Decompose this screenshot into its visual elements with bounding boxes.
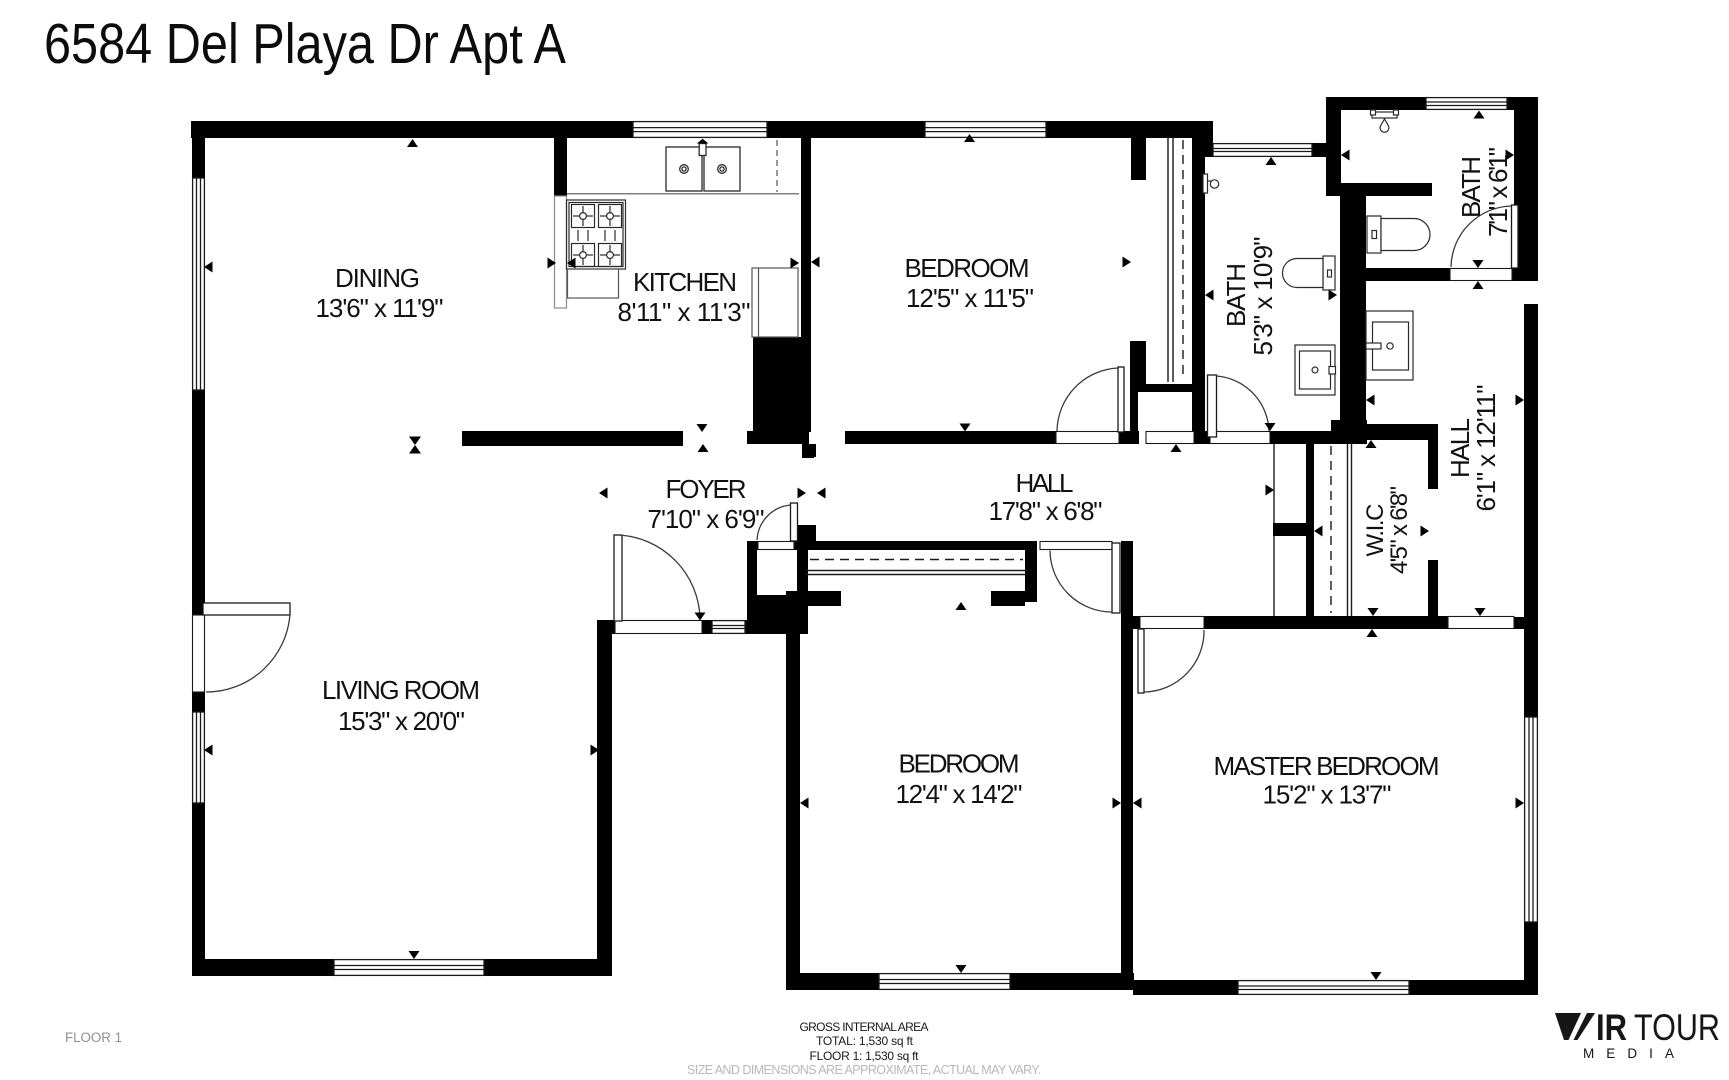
svg-text:TOUR: TOUR xyxy=(1634,1007,1720,1048)
svg-text:6584 Del Playa Dr Apt A: 6584 Del Playa Dr Apt A xyxy=(44,12,566,76)
svg-text:KITCHEN: KITCHEN xyxy=(633,267,737,297)
svg-text:7'1" x 6'1": 7'1" x 6'1" xyxy=(1483,147,1513,237)
svg-text:MEDIA: MEDIA xyxy=(1583,1046,1681,1061)
svg-text:17'8" x 6'8": 17'8" x 6'8" xyxy=(989,496,1103,526)
svg-text:HALL: HALL xyxy=(1016,468,1074,498)
svg-text:15'2" x 13'7": 15'2" x 13'7" xyxy=(1263,780,1392,810)
svg-text:LIVING ROOM: LIVING ROOM xyxy=(322,675,480,705)
svg-text:15'3" x 20'0": 15'3" x 20'0" xyxy=(338,706,465,736)
svg-text:7'10" x 6'9": 7'10" x 6'9" xyxy=(648,504,765,534)
svg-text:DINING: DINING xyxy=(335,263,420,293)
svg-text:12'4" x 14'2": 12'4" x 14'2" xyxy=(896,779,1023,809)
svg-text:FLOOR 1: 1,530 sq ft: FLOOR 1: 1,530 sq ft xyxy=(810,1049,920,1063)
svg-text:W.I.C: W.I.C xyxy=(1362,504,1389,557)
svg-text:MASTER BEDROOM: MASTER BEDROOM xyxy=(1214,751,1440,781)
svg-text:BEDROOM: BEDROOM xyxy=(905,253,1030,283)
svg-text:TOTAL: 1,530 sq ft: TOTAL: 1,530 sq ft xyxy=(816,1034,914,1048)
svg-text:BEDROOM: BEDROOM xyxy=(899,749,1020,779)
svg-text:BATH: BATH xyxy=(1456,156,1486,218)
svg-text:8'11" x 11'3": 8'11" x 11'3" xyxy=(618,297,751,327)
svg-text:FLOOR 1: FLOOR 1 xyxy=(65,1030,122,1045)
svg-text:4'5" x 6'8": 4'5" x 6'8" xyxy=(1386,486,1413,574)
svg-text:FOYER: FOYER xyxy=(666,474,747,504)
svg-text:12'5" x 11'5": 12'5" x 11'5" xyxy=(906,283,1034,313)
svg-text:GROSS INTERNAL AREA: GROSS INTERNAL AREA xyxy=(800,1020,929,1034)
svg-text:BATH: BATH xyxy=(1221,263,1251,327)
svg-text:5'3" x 10'9": 5'3" x 10'9" xyxy=(1248,237,1278,356)
svg-text:SIZE AND DIMENSIONS ARE APPROX: SIZE AND DIMENSIONS ARE APPROXIMATE, ACT… xyxy=(687,1063,1041,1077)
svg-text:6'1" x 12'11": 6'1" x 12'11" xyxy=(1471,385,1501,512)
svg-text:IR: IR xyxy=(1596,1007,1627,1048)
svg-text:13'6" x 11'9": 13'6" x 11'9" xyxy=(316,293,444,323)
